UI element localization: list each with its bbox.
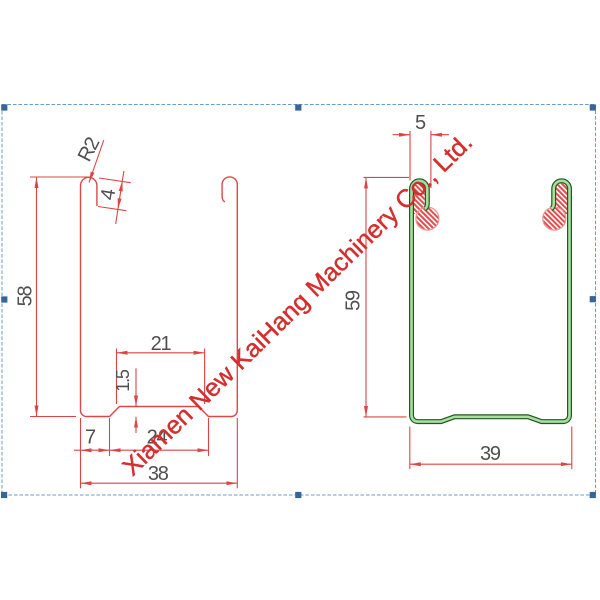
svg-text:39: 39 xyxy=(480,443,501,465)
svg-text:5: 5 xyxy=(415,112,426,134)
svg-text:1.5: 1.5 xyxy=(113,369,133,392)
svg-text:58: 58 xyxy=(15,286,37,307)
svg-text:21: 21 xyxy=(151,333,172,355)
svg-text:59: 59 xyxy=(343,290,365,311)
svg-text:7: 7 xyxy=(85,426,96,448)
